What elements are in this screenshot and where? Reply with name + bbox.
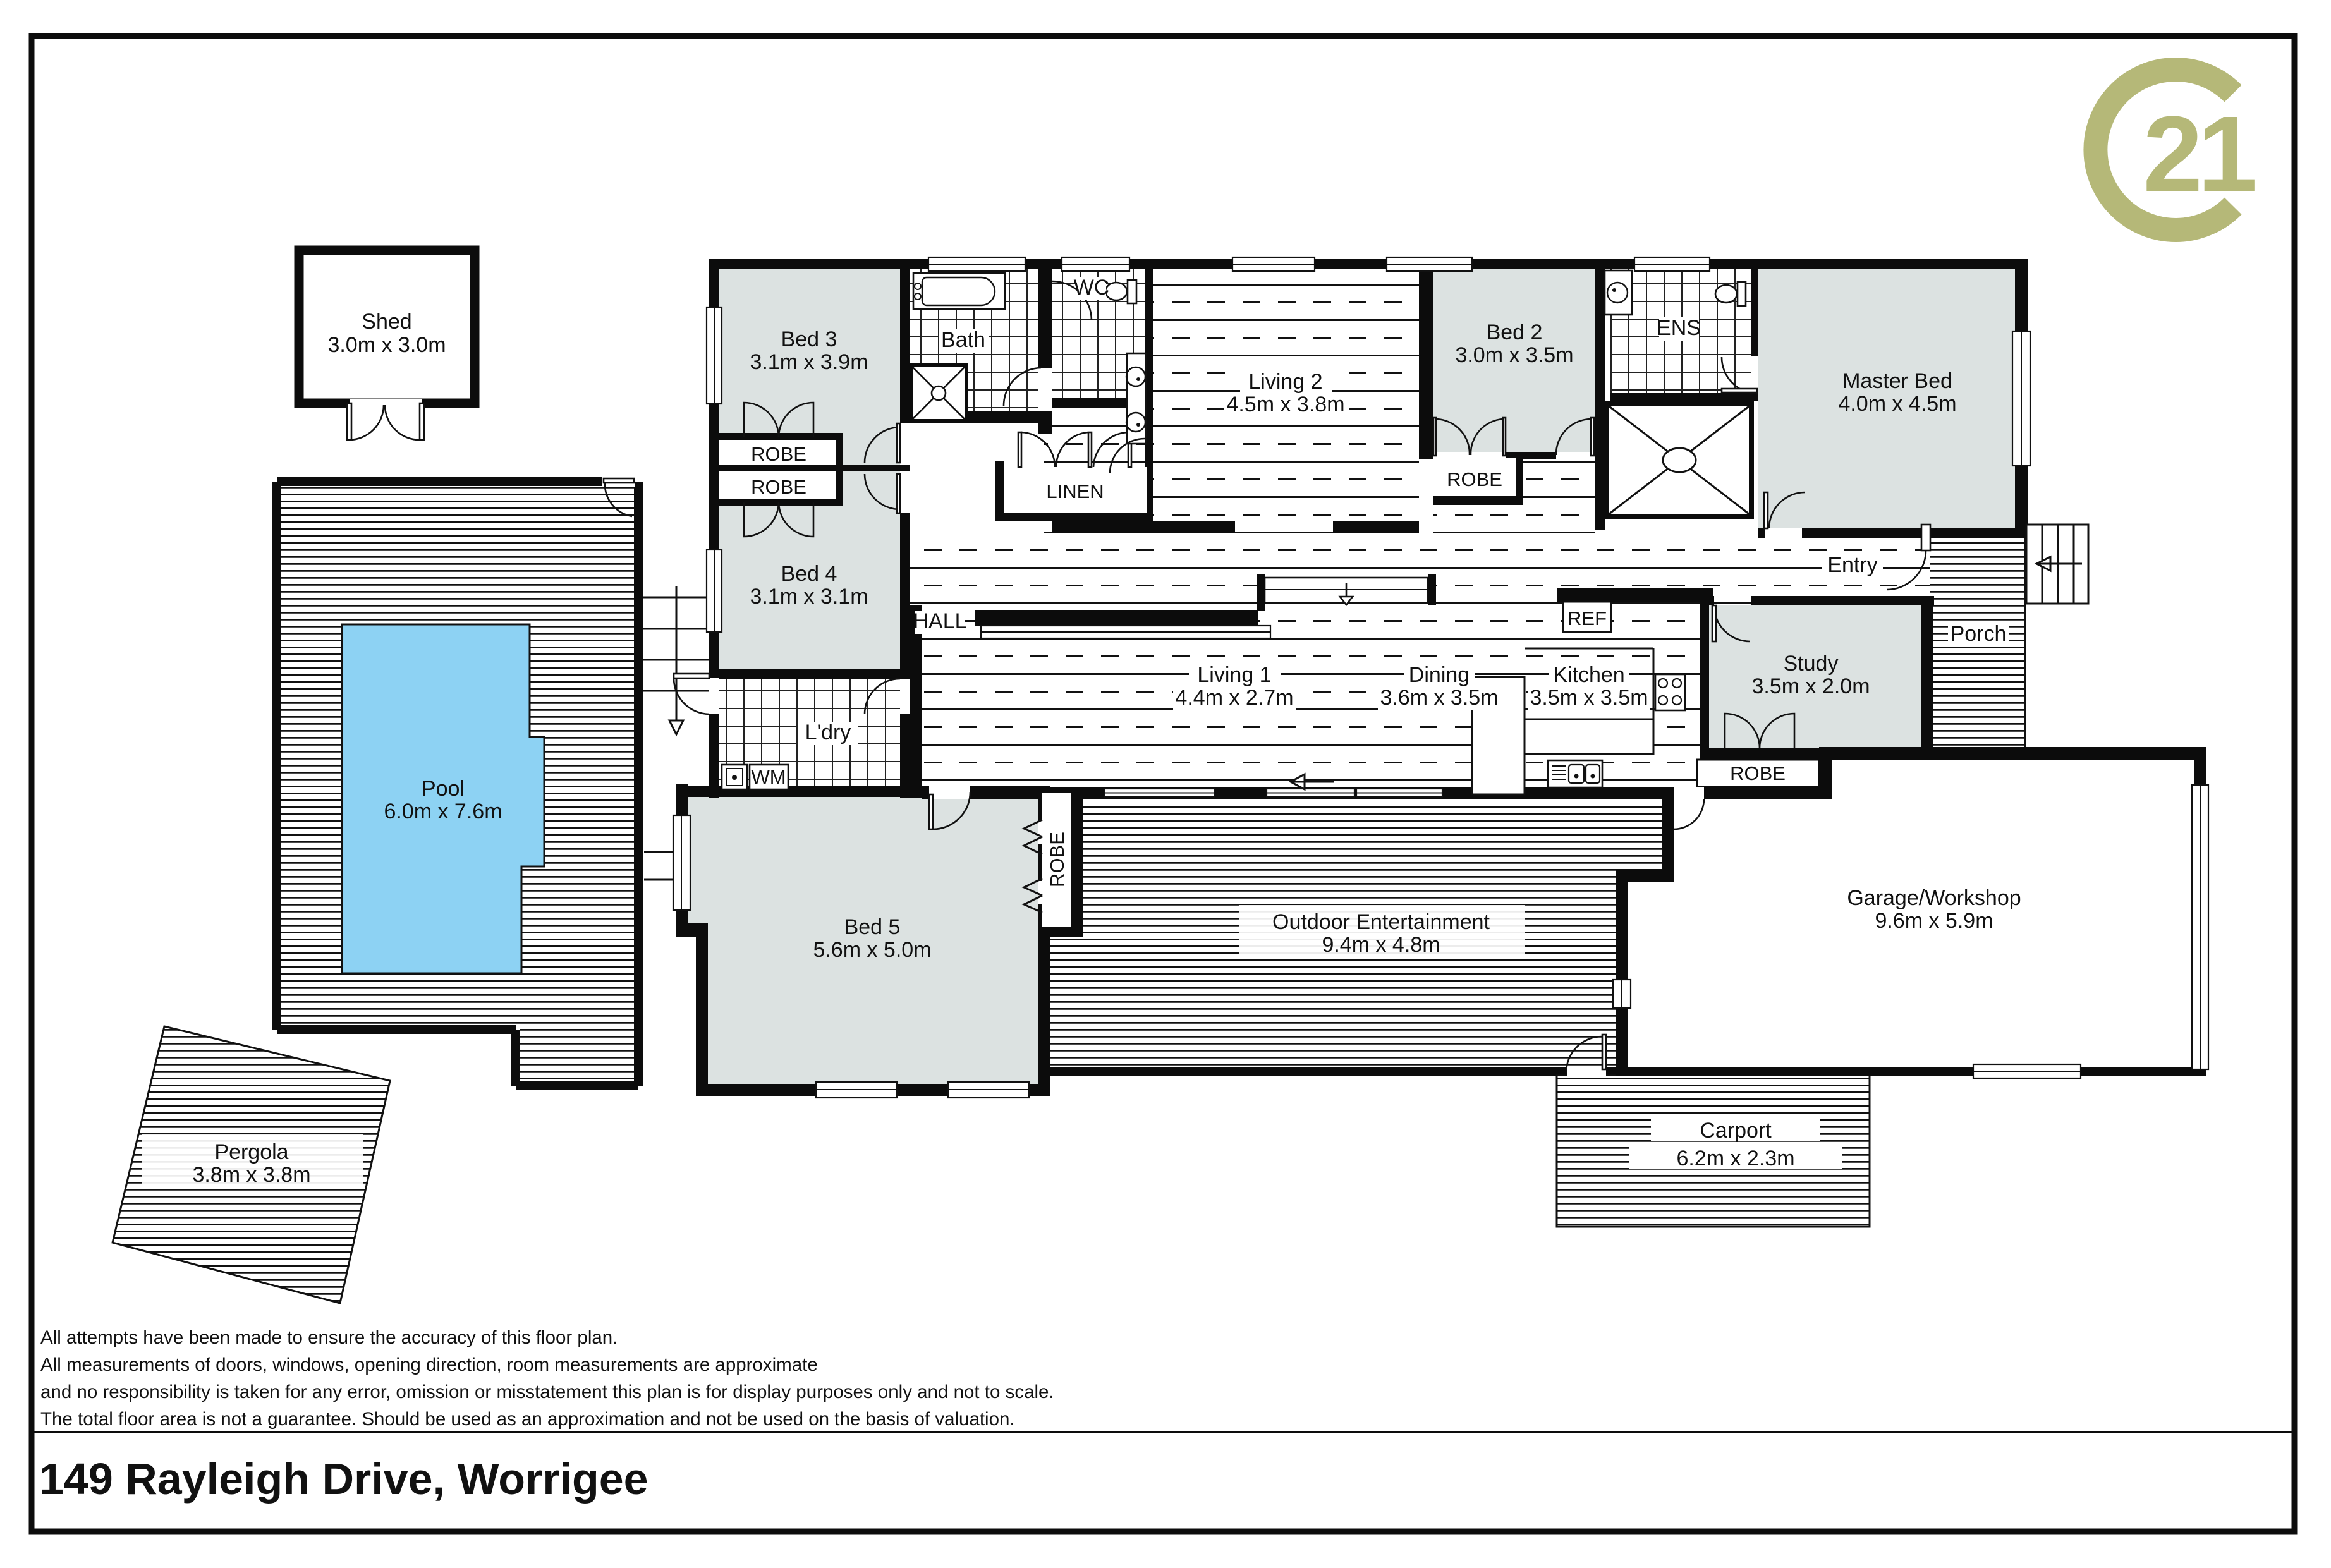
- svg-text:Bed 2: Bed 2: [1487, 320, 1543, 344]
- svg-text:HALL: HALL: [913, 609, 966, 633]
- svg-text:4.5m x 3.8m: 4.5m x 3.8m: [1226, 392, 1344, 416]
- svg-text:4.0m x 4.5m: 4.0m x 4.5m: [1838, 392, 1956, 416]
- svg-text:ROBE: ROBE: [1730, 762, 1786, 784]
- svg-text:Garage/Workshop: Garage/Workshop: [1847, 886, 2021, 910]
- svg-text:3.5m x 3.5m: 3.5m x 3.5m: [1530, 686, 1648, 710]
- svg-text:3.1m x 3.9m: 3.1m x 3.9m: [750, 350, 868, 374]
- svg-text:3.5m x 2.0m: 3.5m x 2.0m: [1751, 674, 1870, 698]
- svg-text:Outdoor Entertainment: Outdoor Entertainment: [1272, 910, 1490, 934]
- svg-text:5.6m x 5.0m: 5.6m x 5.0m: [813, 938, 931, 962]
- svg-text:9.4m x 4.8m: 9.4m x 4.8m: [1322, 933, 1440, 957]
- svg-text:Kitchen: Kitchen: [1553, 663, 1624, 687]
- svg-text:149 Rayleigh Drive, Worrigee: 149 Rayleigh Drive, Worrigee: [39, 1454, 648, 1504]
- svg-text:3.1m x 3.1m: 3.1m x 3.1m: [750, 585, 868, 609]
- svg-text:Bed 4: Bed 4: [781, 562, 837, 586]
- svg-text:Master Bed: Master Bed: [1842, 369, 1952, 393]
- svg-text:ROBE: ROBE: [751, 476, 806, 498]
- svg-text:Pergola: Pergola: [214, 1140, 288, 1164]
- svg-text:6.2m x 2.3m: 6.2m x 2.3m: [1676, 1146, 1794, 1170]
- svg-text:The total floor area is not a: The total floor area is not a guarantee.…: [40, 1409, 1015, 1430]
- svg-text:3.0m x 3.5m: 3.0m x 3.5m: [1455, 343, 1573, 367]
- svg-text:Living 2: Living 2: [1248, 370, 1322, 394]
- svg-text:WM: WM: [751, 766, 786, 788]
- svg-text:9.6m x 5.9m: 9.6m x 5.9m: [1875, 909, 1993, 933]
- svg-text:Dining: Dining: [1409, 663, 1470, 687]
- svg-text:All measurements of doors, win: All measurements of doors, windows, open…: [40, 1354, 818, 1375]
- svg-text:All attempts have been made to: All attempts have been made to ensure th…: [40, 1327, 618, 1348]
- svg-text:Entry: Entry: [1827, 553, 1877, 577]
- svg-text:Shed: Shed: [362, 310, 411, 334]
- svg-text:Porch: Porch: [1951, 622, 2007, 646]
- svg-text:Carport: Carport: [1700, 1119, 1772, 1143]
- svg-text:LINEN: LINEN: [1046, 480, 1104, 502]
- svg-text:Bed 3: Bed 3: [781, 327, 837, 351]
- svg-text:Bath: Bath: [941, 328, 985, 352]
- svg-text:ENS: ENS: [1657, 316, 1701, 340]
- svg-text:and no responsibility is taken: and no responsibility is taken for any e…: [40, 1382, 1054, 1402]
- svg-text:Living 1: Living 1: [1197, 663, 1271, 687]
- svg-text:3.6m x 3.5m: 3.6m x 3.5m: [1380, 686, 1498, 710]
- svg-text:ROBE: ROBE: [1447, 468, 1502, 490]
- svg-text:ROBE: ROBE: [1046, 832, 1068, 887]
- svg-text:Study: Study: [1784, 652, 1839, 676]
- svg-text:L'dry: L'dry: [805, 720, 851, 744]
- svg-text:3.8m x 3.8m: 3.8m x 3.8m: [192, 1163, 310, 1187]
- svg-text:Pool: Pool: [422, 777, 465, 801]
- svg-text:21: 21: [2143, 94, 2255, 214]
- svg-text:3.0m x 3.0m: 3.0m x 3.0m: [327, 333, 446, 357]
- svg-text:WC: WC: [1074, 276, 1110, 300]
- svg-text:REF: REF: [1567, 607, 1607, 629]
- svg-text:ROBE: ROBE: [751, 443, 806, 465]
- svg-text:4.4m x 2.7m: 4.4m x 2.7m: [1175, 686, 1293, 710]
- svg-text:6.0m x 7.6m: 6.0m x 7.6m: [384, 799, 502, 824]
- svg-text:Bed 5: Bed 5: [844, 915, 901, 939]
